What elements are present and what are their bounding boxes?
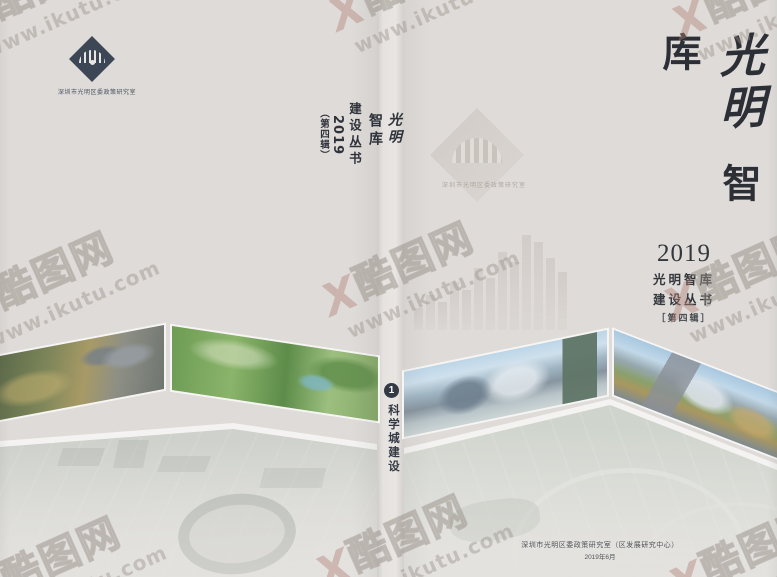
skyline-bar xyxy=(498,252,507,330)
front-subtitle-year: 2019 xyxy=(634,240,734,268)
fan-dot xyxy=(90,60,95,65)
publish-date: 2019年6月 xyxy=(440,551,760,561)
spine-number-badge: 1 xyxy=(384,383,399,398)
spine-title-column: 光明 智库 建设丛书 2019 （第四辑） xyxy=(378,90,404,168)
watermark-x-logo: X xyxy=(0,0,3,47)
photo-aerial-city-dusk xyxy=(0,325,164,420)
publisher-emblem-block: 深圳市光明区委政策研究室 xyxy=(58,36,126,96)
publisher-name: 深圳市光明区委政策研究室（区发展研究中心） xyxy=(440,540,760,550)
front-subtitle-block: 2019 光明智库 建设丛书 ［第四辑］ xyxy=(634,240,734,324)
photo-aerial-park-green xyxy=(172,326,378,421)
front-title-calligraphy: 光明 xyxy=(706,30,771,137)
watermark-site-name: 酷图网 xyxy=(354,0,488,23)
watermark-site-name: 酷图网 xyxy=(0,225,121,318)
spine-title-calligraphy: 光明 xyxy=(384,112,404,146)
skyline-bar xyxy=(486,278,495,330)
ghost-fan-motif xyxy=(452,138,502,163)
emblem-caption: 深圳市光明区委政策研究室 xyxy=(58,87,126,96)
watermark-x-logo: X xyxy=(314,267,366,327)
book-cover-spread: 深圳市光明区委政策研究室 深圳市光明区委政策研究室 光明 智库 2019 光明智… xyxy=(0,0,777,577)
spine-subject: 科学城建设 xyxy=(385,404,401,474)
watermark-site-name: 酷图网 xyxy=(0,0,118,28)
watermark-x-logo: X xyxy=(0,277,6,337)
spine-year: 2019 xyxy=(330,115,345,155)
skyline-bar xyxy=(474,268,483,330)
front-subtitle-line1: 光明智库 xyxy=(634,269,734,288)
watermark-url: www.ikutu.com xyxy=(341,0,543,62)
spine-panel xyxy=(377,0,404,577)
front-title: 光明 智库 xyxy=(650,32,771,244)
skyline-bar xyxy=(522,235,531,330)
skyline-bar xyxy=(414,308,423,330)
skyline-bar xyxy=(450,282,459,330)
spine-series: 建设丛书 xyxy=(345,102,364,168)
watermark-site-name: 酷图网 xyxy=(697,0,777,31)
skyline-bar xyxy=(546,258,555,330)
spine-title-serif: 智库 xyxy=(364,113,384,149)
stock-watermark: X酷图网www.ikutu.com xyxy=(317,0,543,62)
skyline-bar xyxy=(510,262,519,330)
spine-volume: （第四辑） xyxy=(316,108,330,161)
front-subtitle-volume: ［第四辑］ xyxy=(634,311,734,324)
skyline-bar xyxy=(462,290,471,330)
skyline-bar xyxy=(534,242,543,330)
front-subtitle-line2: 建设丛书 xyxy=(634,289,734,308)
ghost-emblem-caption: 深圳市光明区委政策研究室 xyxy=(422,180,546,189)
skyline-bar xyxy=(558,272,567,330)
watermark-x-logo: X xyxy=(321,0,373,42)
skyline-bar xyxy=(426,295,435,330)
skyline-bar xyxy=(438,302,447,330)
ghost-city-skyline xyxy=(414,226,586,330)
diamond-fan-emblem-icon xyxy=(69,36,115,82)
publisher-imprint: 深圳市光明区委政策研究室（区发展研究中心） 2019年6月 xyxy=(440,540,760,561)
